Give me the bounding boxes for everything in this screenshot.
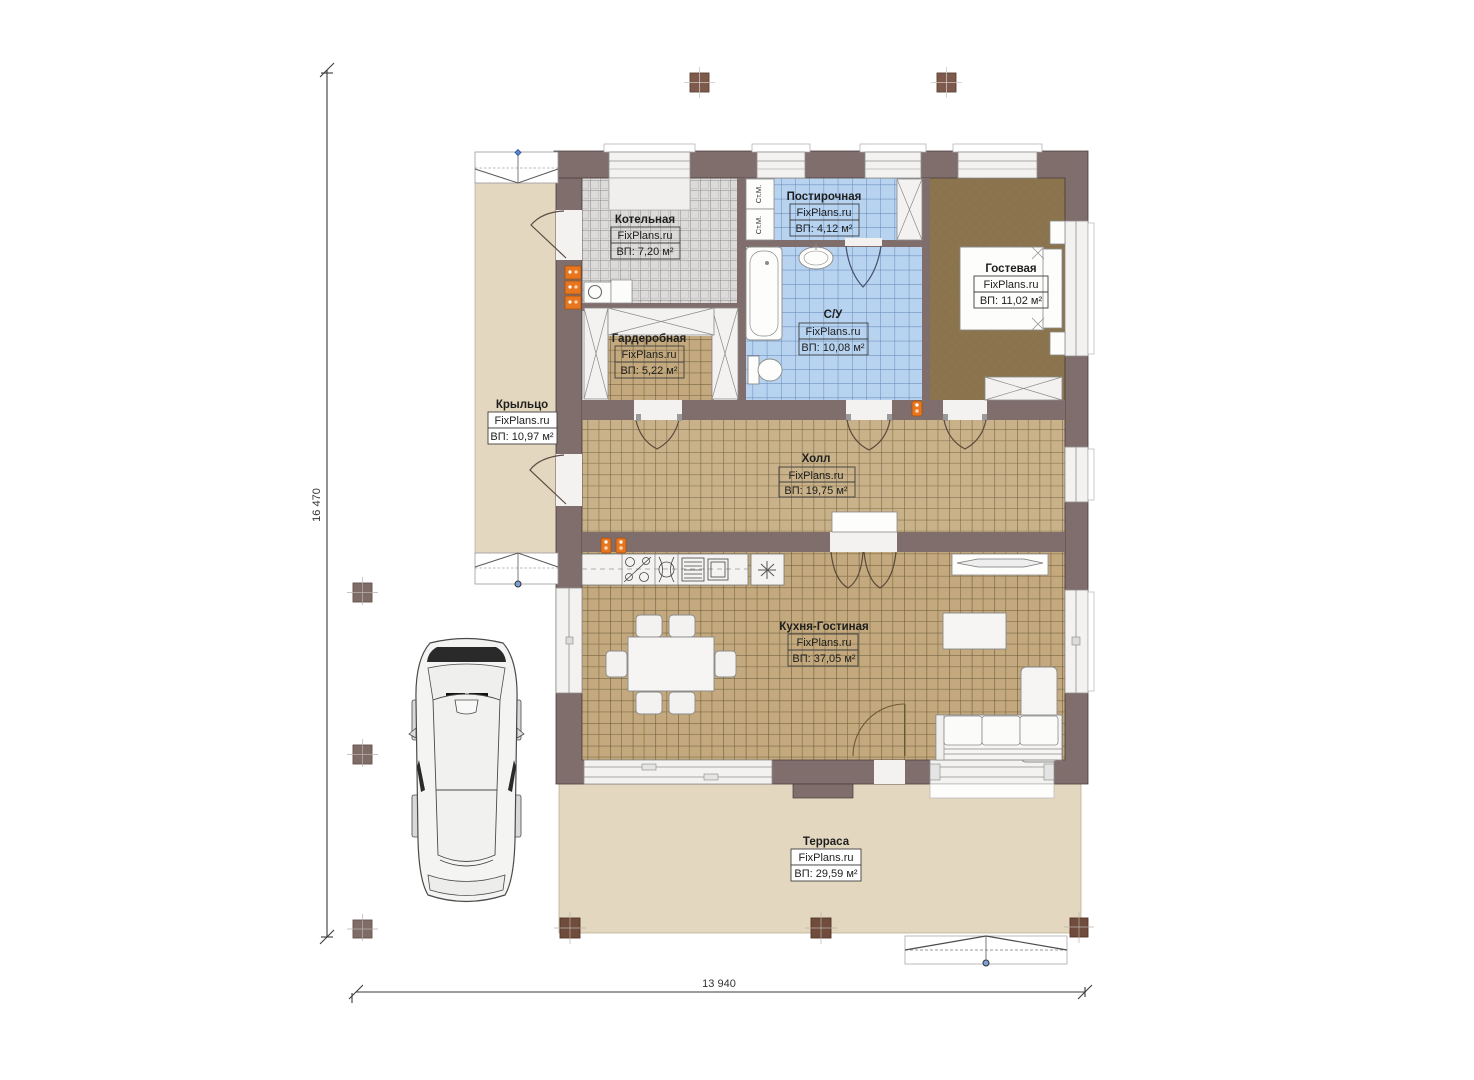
svg-text:ВП: 7,20 м²: ВП: 7,20 м² xyxy=(616,246,673,258)
svg-text:13 940: 13 940 xyxy=(702,978,736,990)
svg-text:ВП: 29,59 м²: ВП: 29,59 м² xyxy=(794,868,858,880)
svg-text:Котельная: Котельная xyxy=(615,214,675,226)
svg-text:FixPlans.ru: FixPlans.ru xyxy=(805,326,860,338)
svg-text:FixPlans.ru: FixPlans.ru xyxy=(796,637,851,649)
svg-text:Крыльцо: Крыльцо xyxy=(496,399,548,411)
svg-text:ВП: 5,22 м²: ВП: 5,22 м² xyxy=(620,365,677,377)
svg-text:FixPlans.ru: FixPlans.ru xyxy=(796,207,851,219)
svg-text:ВП: 11,02 м²: ВП: 11,02 м² xyxy=(980,295,1043,307)
svg-text:FixPlans.ru: FixPlans.ru xyxy=(798,852,853,864)
svg-text:FixPlans.ru: FixPlans.ru xyxy=(621,349,676,361)
svg-text:Ст.М.: Ст.М. xyxy=(754,216,763,234)
svg-text:FixPlans.ru: FixPlans.ru xyxy=(788,470,843,482)
svg-text:ВП: 10,97 м²: ВП: 10,97 м² xyxy=(490,431,554,443)
svg-text:Гостевая: Гостевая xyxy=(985,263,1036,275)
svg-text:16 470: 16 470 xyxy=(311,488,323,522)
svg-text:Ст.М.: Ст.М. xyxy=(754,185,763,203)
svg-text:ВП: 19,75 м²: ВП: 19,75 м² xyxy=(784,485,848,497)
svg-text:ВП: 10,08 м²: ВП: 10,08 м² xyxy=(801,342,865,354)
svg-text:ВП: 37,05 м²: ВП: 37,05 м² xyxy=(792,653,856,665)
svg-text:FixPlans.ru: FixPlans.ru xyxy=(617,230,672,242)
svg-text:FixPlans.ru: FixPlans.ru xyxy=(983,279,1038,291)
svg-text:ВП: 4,12 м²: ВП: 4,12 м² xyxy=(795,223,852,235)
svg-text:Холл: Холл xyxy=(802,453,831,465)
svg-text:FixPlans.ru: FixPlans.ru xyxy=(494,415,549,427)
svg-text:С/У: С/У xyxy=(824,309,844,321)
svg-text:Кухня-Гостиная: Кухня-Гостиная xyxy=(779,621,868,633)
svg-text:Гардеробная: Гардеробная xyxy=(612,333,686,345)
svg-text:Постирочная: Постирочная xyxy=(787,191,862,203)
svg-text:Терраса: Терраса xyxy=(803,836,850,848)
